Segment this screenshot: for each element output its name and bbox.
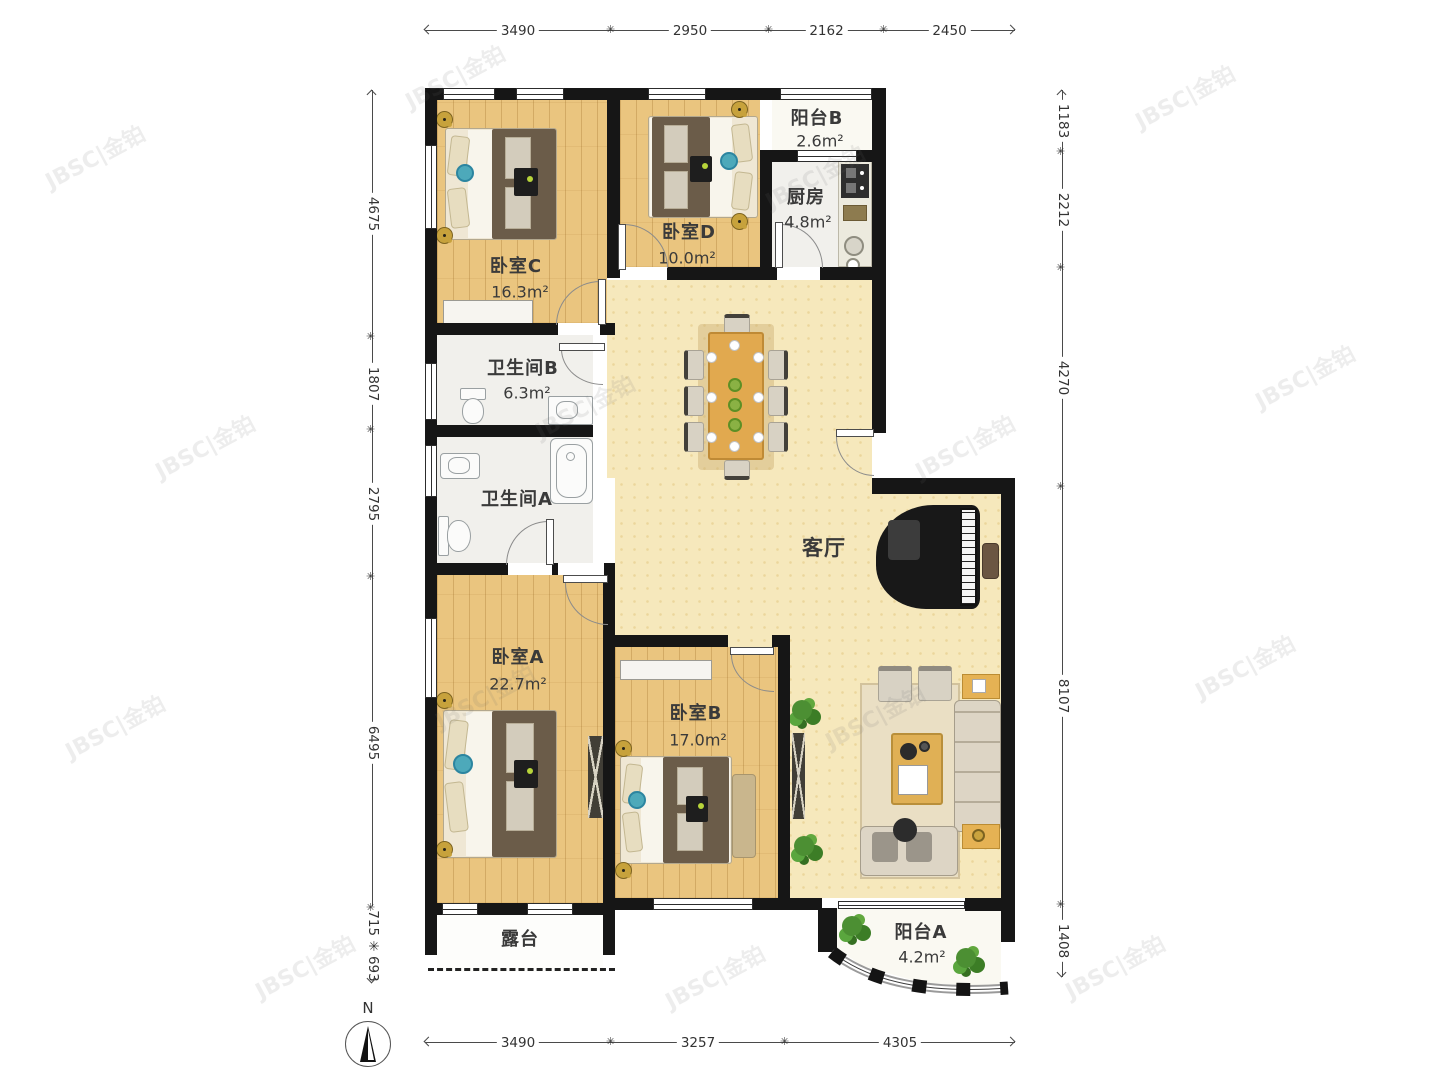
bedroom-a-light-icon	[437, 842, 452, 857]
dim-tick	[606, 23, 615, 36]
bedroom-a-light-icon	[437, 693, 452, 708]
bathroom-b-door	[559, 343, 605, 351]
bedroom-d-door	[618, 224, 626, 270]
wall	[425, 563, 508, 575]
dim-left-4: 6495	[372, 577, 373, 908]
wall	[760, 150, 797, 162]
room-label-terrace: 露台	[501, 925, 539, 951]
dim-bottom-3: 4305	[785, 1042, 1015, 1043]
watermark: JBSC|金铂	[1129, 56, 1240, 135]
wall	[615, 635, 728, 647]
dim-tick	[879, 23, 888, 36]
window	[516, 88, 564, 100]
room-area-bedroom-c: 16.3m²	[491, 283, 549, 302]
watermark: JBSC|金铂	[909, 406, 1020, 485]
window	[443, 88, 495, 100]
dim-top-4: 2450	[884, 30, 1015, 31]
dim-arrow	[424, 1037, 434, 1047]
room-label-bathroom-a: 卫生间A	[481, 485, 553, 511]
dim-top-1: 3490	[425, 30, 611, 31]
watermark: JBSC|金铂	[39, 116, 150, 195]
window	[425, 145, 437, 229]
wall	[820, 267, 872, 280]
wall	[753, 898, 790, 910]
wall	[604, 563, 615, 575]
window	[780, 88, 872, 100]
bedroom-d-light-icon	[732, 214, 747, 229]
wall	[872, 478, 1015, 494]
dim-left-3: 2795	[372, 430, 373, 577]
wall	[425, 323, 558, 335]
dim-arrow	[1057, 90, 1067, 100]
wall	[603, 575, 615, 910]
dim-top-2: 2950	[611, 30, 769, 31]
window	[648, 88, 706, 100]
compass-icon	[345, 1021, 391, 1067]
room-area-bedroom-d: 10.0m²	[658, 249, 716, 268]
wall	[772, 635, 790, 647]
kitchen-door	[775, 222, 783, 268]
bedroom-a-radiator	[588, 736, 603, 818]
dim-tick	[764, 23, 773, 36]
entry-door	[836, 429, 874, 437]
bedroom-c-light-icon	[437, 112, 452, 127]
entry-opening	[872, 433, 886, 478]
dim-left-5: 715 ✳ 693	[372, 908, 373, 983]
plant-icon	[792, 700, 812, 720]
bathroom-a-door	[546, 519, 554, 565]
window	[442, 903, 478, 915]
dim-arrow	[367, 90, 377, 100]
balcony-a-slider	[838, 901, 965, 909]
dim-arrow	[1006, 1037, 1016, 1047]
bedroom-c-dresser	[443, 300, 533, 325]
dim-tick	[780, 1035, 789, 1048]
dim-arrow	[424, 25, 434, 35]
room-area-balcony-a: 4.2m²	[898, 948, 945, 967]
dim-top-3: 2162	[769, 30, 884, 31]
bedroom-b-light-icon	[616, 863, 631, 878]
terrace-dashed-edge	[428, 968, 615, 971]
wall	[667, 267, 777, 280]
room-label-bedroom-d: 卧室D	[662, 218, 716, 244]
living-radiator	[792, 733, 805, 819]
wall	[760, 158, 772, 267]
room-label-bedroom-b: 卧室B	[670, 699, 723, 725]
dim-tick	[1056, 480, 1065, 493]
window	[653, 898, 753, 910]
dim-left-1: 4675	[372, 90, 373, 337]
dim-bottom-1: 3490	[425, 1042, 611, 1043]
dim-right-1: 1183	[1062, 90, 1063, 152]
bedroom-c-light-icon	[437, 228, 452, 243]
dim-tick	[606, 1035, 615, 1048]
dim-right-3: 4270	[1062, 268, 1063, 487]
dim-bottom-2: 3257	[611, 1042, 785, 1043]
dim-tick	[1056, 145, 1065, 158]
bedroom-b-shelf	[620, 660, 712, 680]
room-area-balcony-b: 2.6m²	[796, 132, 843, 151]
dim-right-2: 2212	[1062, 152, 1063, 268]
watermark: JBSC|金铂	[249, 926, 360, 1005]
room-label-bathroom-b: 卫生间B	[487, 354, 559, 380]
compass-north-label: N	[362, 999, 373, 1017]
room-area-kitchen: 4.8m²	[784, 213, 831, 232]
dim-tick	[366, 423, 375, 436]
bedroom-a-door	[563, 575, 608, 583]
dim-tick	[366, 570, 375, 583]
dim-arrow	[1006, 25, 1016, 35]
window	[527, 903, 573, 915]
room-label-bedroom-a: 卧室A	[492, 643, 545, 669]
watermark: JBSC|金铂	[59, 686, 170, 765]
dim-right-5: 1408	[1062, 905, 1063, 977]
wall	[778, 647, 790, 910]
dim-tick	[1056, 898, 1065, 911]
room-label-balcony-b: 阳台B	[791, 104, 844, 130]
room-label-bedroom-c: 卧室C	[490, 252, 542, 278]
watermark: JBSC|金铂	[149, 406, 260, 485]
dim-tick	[366, 330, 375, 343]
watermark: JBSC|金铂	[659, 936, 770, 1015]
room-label-living: 客厅	[802, 532, 846, 562]
dim-tick	[366, 901, 375, 914]
window	[425, 363, 437, 420]
wall	[603, 910, 615, 955]
plant-icon	[794, 836, 814, 856]
bedroom-b-light-icon	[616, 741, 631, 756]
bedroom-b-bench	[732, 774, 756, 858]
wall	[437, 425, 593, 437]
bedroom-c-door	[598, 279, 606, 325]
bedroom-d-light-icon	[732, 102, 747, 117]
watermark: JBSC|金铂	[1249, 336, 1360, 415]
bedroom-b-door	[730, 647, 774, 655]
window	[797, 150, 857, 162]
dim-right-4: 8107	[1062, 487, 1063, 905]
room-area-bedroom-b: 17.0m²	[669, 731, 727, 750]
window	[425, 445, 437, 497]
dim-left-2: 1807	[372, 337, 373, 430]
wall	[615, 898, 653, 910]
wall	[1001, 494, 1015, 908]
room-area-bathroom-b: 6.3m²	[503, 384, 550, 403]
window	[425, 618, 437, 698]
floor-plan: 卧室C 16.3m² 卧室D 10.0m² 阳台B 2.6m² 厨房 4.8m²…	[0, 0, 1440, 1080]
dim-arrow	[1057, 968, 1067, 978]
room-label-kitchen: 厨房	[787, 183, 825, 209]
watermark: JBSC|金铂	[1059, 926, 1170, 1005]
wall	[872, 88, 886, 433]
room-label-balcony-a: 阳台A	[895, 918, 948, 944]
room-area-bedroom-a: 22.7m²	[489, 675, 547, 694]
watermark: JBSC|金铂	[1189, 626, 1300, 705]
dim-tick	[1056, 261, 1065, 274]
